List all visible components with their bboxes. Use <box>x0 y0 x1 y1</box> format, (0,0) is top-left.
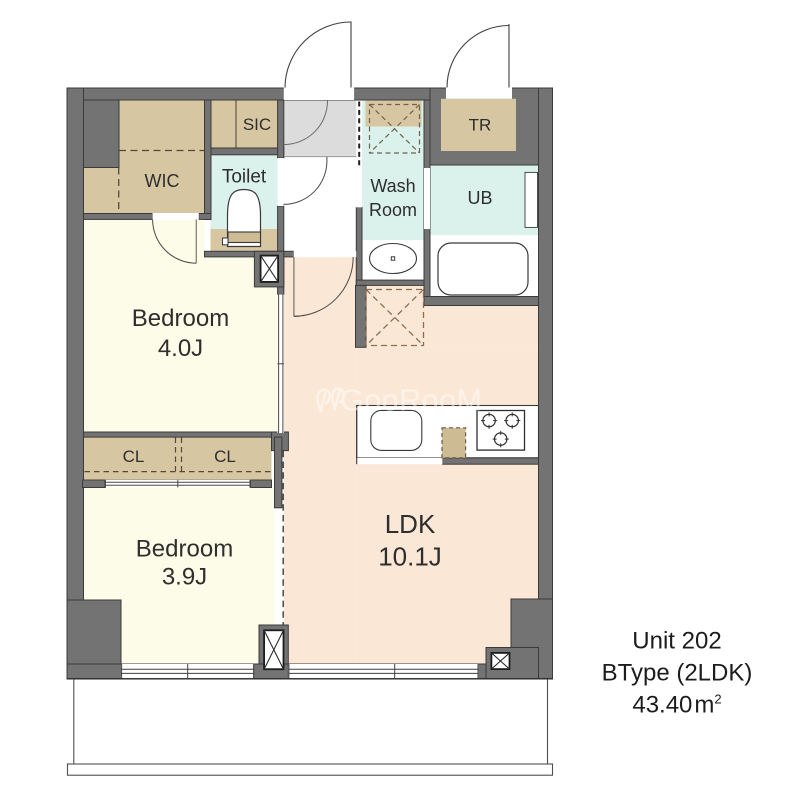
svg-text:BType (2LDK): BType (2LDK) <box>602 660 753 687</box>
svg-text:CL: CL <box>214 447 236 466</box>
svg-text:Bedroom: Bedroom <box>136 536 233 563</box>
svg-text:43.40m2: 43.40m2 <box>632 692 721 719</box>
svg-text:10.1J: 10.1J <box>378 542 442 572</box>
svg-text:SIC: SIC <box>243 115 271 134</box>
svg-text:Wash: Wash <box>370 176 415 196</box>
svg-text:CL: CL <box>123 447 145 466</box>
svg-text:TR: TR <box>469 116 492 135</box>
svg-text:Room: Room <box>369 200 417 220</box>
svg-text:WIC: WIC <box>145 171 180 191</box>
svg-text:LDK: LDK <box>385 509 436 539</box>
svg-text:3.9J: 3.9J <box>162 564 207 591</box>
svg-text:Toilet: Toilet <box>222 167 267 188</box>
svg-text:GooRooM: GooRooM <box>340 384 483 418</box>
svg-text:UB: UB <box>467 188 492 208</box>
svg-text:4.0J: 4.0J <box>158 335 203 362</box>
svg-text:Unit 202: Unit 202 <box>632 628 721 655</box>
svg-text:Bedroom: Bedroom <box>132 305 229 332</box>
